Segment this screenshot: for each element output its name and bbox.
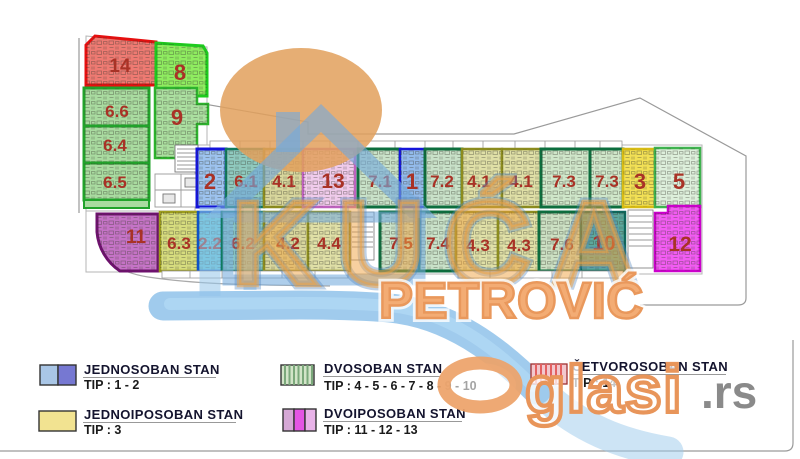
svg-text:DVOSOBAN STAN: DVOSOBAN STAN — [324, 361, 442, 376]
svg-text:JEDNOIPOSOBAN STAN: JEDNOIPOSOBAN STAN — [84, 407, 243, 422]
svg-text:PETROVIĆ: PETROVIĆ — [379, 272, 644, 329]
svg-text:JEDNOSOBAN STAN: JEDNOSOBAN STAN — [84, 362, 220, 377]
svg-text:2: 2 — [204, 169, 216, 194]
svg-text:DVOIPOSOBAN STAN: DVOIPOSOBAN STAN — [324, 406, 466, 421]
svg-text:TIP : 1 - 2: TIP : 1 - 2 — [84, 378, 139, 392]
svg-text:glasi: glasi — [525, 352, 683, 426]
svg-text:9: 9 — [171, 105, 183, 130]
svg-text:8: 8 — [174, 60, 186, 85]
svg-text:5: 5 — [673, 169, 685, 194]
svg-text:6.3: 6.3 — [167, 234, 191, 253]
svg-text:12: 12 — [668, 233, 691, 256]
svg-text:11: 11 — [126, 227, 147, 248]
svg-text:6.6: 6.6 — [105, 102, 129, 121]
svg-text:TIP : 3: TIP : 3 — [84, 423, 121, 437]
svg-text:14: 14 — [109, 56, 131, 77]
svg-text:TIP : 11 - 12 - 13: TIP : 11 - 12 - 13 — [324, 423, 418, 437]
svg-text:.rs: .rs — [701, 366, 757, 418]
svg-text:6.5: 6.5 — [103, 173, 127, 192]
svg-text:6.4: 6.4 — [103, 136, 127, 155]
